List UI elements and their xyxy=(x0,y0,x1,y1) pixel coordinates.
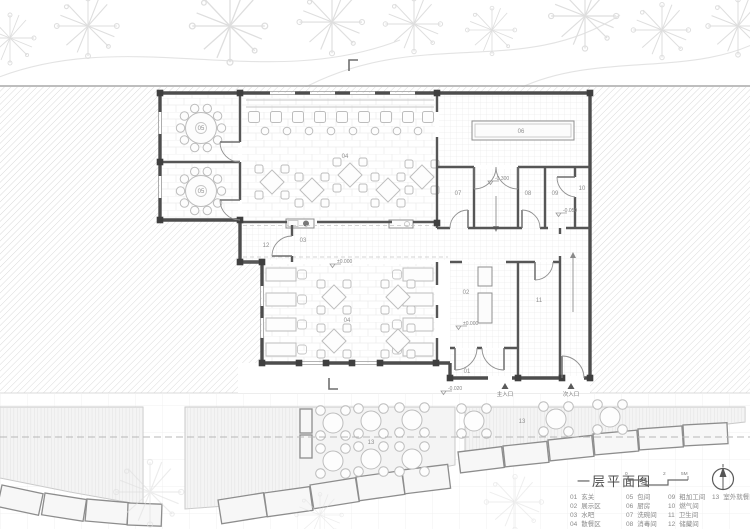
scale-tick: 0 xyxy=(625,471,628,477)
room-number-label: 03 xyxy=(300,238,307,244)
scale-tick: 5M xyxy=(681,471,688,477)
room-number-label: 04 xyxy=(344,318,351,324)
elevation-value: -0.020 xyxy=(448,386,462,392)
legend-item: 09粗加工间 xyxy=(668,492,705,501)
room-number-label: 05 xyxy=(198,189,205,195)
room-number-label: 13 xyxy=(368,440,375,446)
secondary-entrance-label: 次入口 xyxy=(563,390,580,398)
main-entrance-label: 主入口 xyxy=(497,390,514,398)
room-number-label: 13 xyxy=(519,419,526,425)
elevation-value: ±0.000 xyxy=(337,259,352,265)
legend-item: 06厨房 xyxy=(626,501,650,510)
elevation-value: -0.050 xyxy=(563,208,577,214)
legend-item: 08消毒间 xyxy=(626,519,657,528)
room-number-label: 09 xyxy=(552,191,559,197)
room-number-label: 11 xyxy=(536,298,543,304)
legend-item: 05包间 xyxy=(626,492,650,501)
legend-item: 02展示区 xyxy=(570,502,601,510)
room-number-label: 08 xyxy=(525,191,532,197)
scale-tick: 2 xyxy=(663,471,666,477)
room-number-label: 04 xyxy=(342,154,349,160)
legend-item: 12储藏间 xyxy=(668,519,699,528)
legend-item: 10燃气间 xyxy=(668,501,699,510)
elevation-value: -0.300 xyxy=(495,176,509,182)
floor-plan-drawing: 05 05 04 06 07 08 09 10 12 03 04 02 11 0… xyxy=(0,0,750,529)
room-number-label: 02 xyxy=(463,290,470,296)
room-number-label: 10 xyxy=(579,186,586,192)
room-number-label: 07 xyxy=(455,191,462,197)
legend-item: 13室外就餐区 xyxy=(712,492,750,501)
legend-item: 01玄关 xyxy=(570,492,595,501)
trees-top-band xyxy=(0,0,750,90)
legend-item: 03水吧 xyxy=(570,510,595,519)
drawing-title: 一层平面图 xyxy=(577,474,652,489)
floor-plan-page: 05 05 04 06 07 08 09 10 12 03 04 02 11 0… xyxy=(0,0,750,529)
legend-item: 07洗碗间 xyxy=(626,510,657,519)
room-number-label: 06 xyxy=(518,129,525,135)
room-number-label: 05 xyxy=(198,126,205,132)
elevation-value: ±0.000 xyxy=(463,321,478,327)
legend-item: 11卫生间 xyxy=(668,510,698,519)
legend-item: 04散餐区 xyxy=(570,519,601,528)
room-number-label: 12 xyxy=(263,243,270,249)
room-number-label: 01 xyxy=(464,369,471,375)
